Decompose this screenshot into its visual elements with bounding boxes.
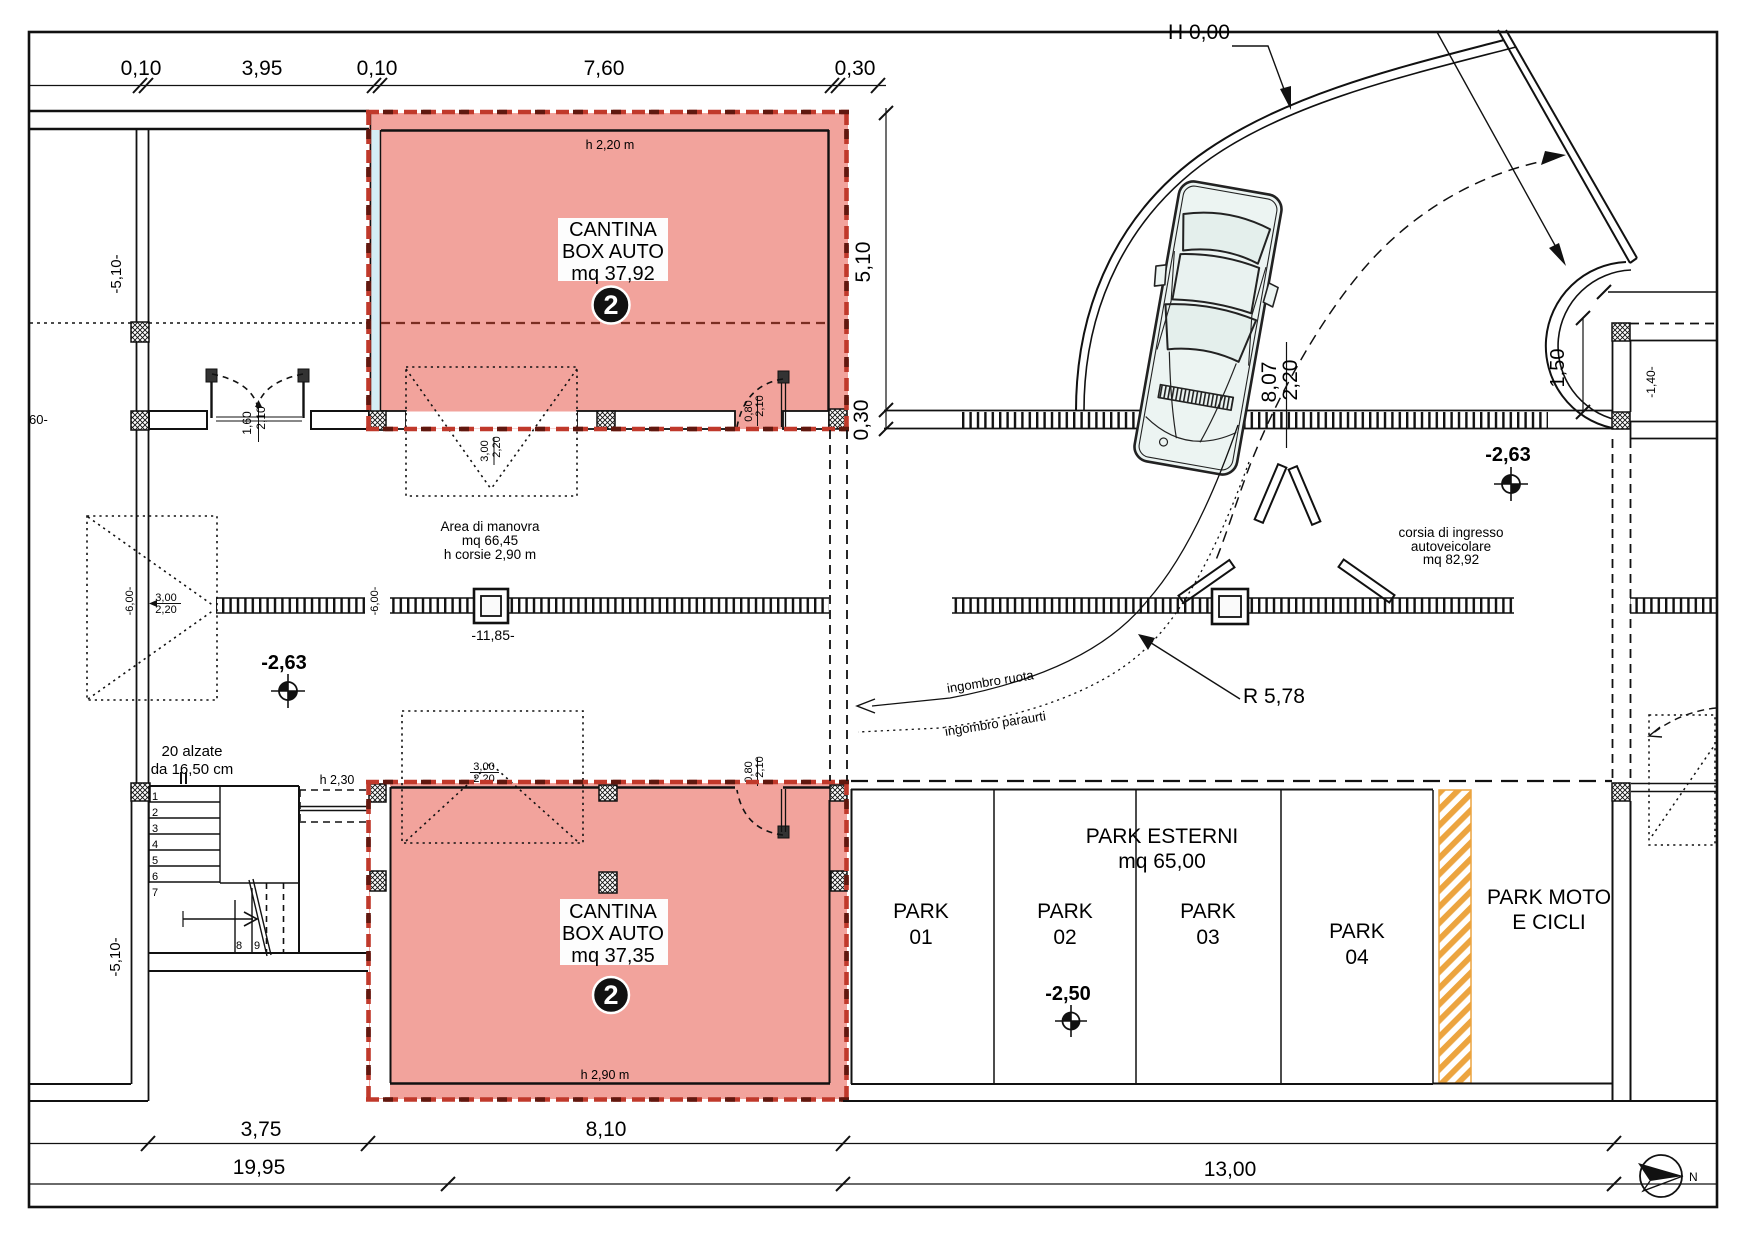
- svg-text:2,20: 2,20: [155, 604, 176, 616]
- svg-text:2,20: 2,20: [491, 436, 503, 457]
- svg-text:-2,63: -2,63: [1485, 444, 1531, 466]
- svg-text:3,75: 3,75: [241, 1118, 282, 1141]
- svg-text:20 alzate: 20 alzate: [162, 743, 223, 760]
- svg-text:E CICLI: E CICLI: [1512, 911, 1586, 934]
- svg-text:2,20: 2,20: [1279, 360, 1302, 401]
- svg-text:mq 82,92: mq 82,92: [1423, 552, 1479, 567]
- svg-text:-5,10-: -5,10-: [108, 254, 125, 293]
- svg-text:3,00: 3,00: [479, 440, 491, 461]
- svg-text:03: 03: [1196, 926, 1219, 949]
- svg-text:Area di manovra: Area di manovra: [440, 519, 540, 534]
- svg-text:0,10: 0,10: [357, 57, 398, 80]
- svg-text:2,10: 2,10: [254, 406, 268, 430]
- svg-text:1,50: 1,50: [1547, 349, 1569, 388]
- svg-text:2: 2: [603, 980, 618, 1010]
- svg-text:5,10: 5,10: [852, 242, 875, 283]
- svg-text:0,10: 0,10: [121, 57, 162, 80]
- svg-text:mq 37,35: mq 37,35: [571, 945, 654, 967]
- svg-text:9: 9: [254, 940, 260, 952]
- svg-text:-11,85-: -11,85-: [471, 627, 515, 643]
- svg-text:60-: 60-: [29, 412, 48, 427]
- svg-text:CANTINA: CANTINA: [569, 901, 657, 923]
- svg-text:13,00: 13,00: [1204, 1158, 1257, 1181]
- svg-text:corsia di ingresso: corsia di ingresso: [1398, 525, 1503, 540]
- svg-text:mq 66,45: mq 66,45: [462, 533, 518, 548]
- svg-text:2,10: 2,10: [754, 756, 766, 777]
- svg-text:04: 04: [1345, 946, 1369, 969]
- svg-text:02: 02: [1053, 926, 1076, 949]
- svg-text:8: 8: [236, 940, 242, 952]
- svg-text:-6,00-: -6,00-: [369, 586, 381, 615]
- svg-text:3,00: 3,00: [155, 592, 176, 604]
- svg-text:N: N: [1689, 1170, 1698, 1184]
- svg-text:BOX AUTO: BOX AUTO: [562, 241, 664, 263]
- svg-text:mq 37,92: mq 37,92: [571, 263, 654, 285]
- svg-text:4: 4: [152, 839, 158, 851]
- svg-text:7: 7: [152, 887, 158, 899]
- svg-text:BOX AUTO: BOX AUTO: [562, 923, 664, 945]
- svg-text:8,10: 8,10: [586, 1118, 627, 1141]
- svg-text:2: 2: [152, 807, 158, 819]
- svg-text:h 2,30: h 2,30: [320, 773, 355, 787]
- svg-text:PARK ESTERNI: PARK ESTERNI: [1086, 825, 1238, 848]
- svg-text:CANTINA: CANTINA: [569, 219, 657, 241]
- svg-text:0,30: 0,30: [835, 57, 876, 80]
- svg-text:h 2,90 m: h 2,90 m: [581, 1068, 630, 1082]
- svg-text:PARK: PARK: [893, 900, 949, 923]
- svg-text:-2,63: -2,63: [261, 652, 307, 674]
- svg-text:01: 01: [909, 926, 932, 949]
- svg-text:1,60: 1,60: [240, 411, 254, 435]
- svg-text:0,30: 0,30: [850, 400, 873, 441]
- svg-text:3: 3: [152, 823, 158, 835]
- svg-text:6: 6: [152, 871, 158, 883]
- svg-text:da 16,50 cm: da 16,50 cm: [151, 761, 234, 778]
- svg-text:2,10: 2,10: [754, 395, 766, 416]
- svg-text:2: 2: [603, 290, 618, 320]
- svg-text:8,07: 8,07: [1258, 362, 1281, 403]
- svg-text:PARK: PARK: [1180, 900, 1236, 923]
- svg-text:H 0,00: H 0,00: [1168, 21, 1230, 44]
- svg-text:PARK: PARK: [1329, 920, 1385, 943]
- svg-text:-5,10-: -5,10-: [107, 937, 124, 976]
- svg-text:PARK MOTO: PARK MOTO: [1487, 886, 1611, 909]
- svg-text:7,60: 7,60: [584, 57, 625, 80]
- svg-text:3,00: 3,00: [473, 761, 494, 773]
- svg-text:5: 5: [152, 855, 158, 867]
- svg-text:19,95: 19,95: [233, 1156, 286, 1179]
- svg-text:-6,00-: -6,00-: [124, 586, 136, 615]
- svg-text:h corsie 2,90 m: h corsie 2,90 m: [444, 547, 536, 562]
- svg-text:-2,50: -2,50: [1045, 983, 1091, 1005]
- svg-text:mq 65,00: mq 65,00: [1118, 850, 1206, 873]
- svg-text:1: 1: [152, 791, 158, 803]
- svg-text:-1,40-: -1,40-: [1644, 366, 1658, 397]
- svg-text:3,95: 3,95: [242, 57, 283, 80]
- svg-text:R 5,78: R 5,78: [1243, 685, 1305, 708]
- svg-text:PARK: PARK: [1037, 900, 1093, 923]
- svg-text:h 2,20 m: h 2,20 m: [586, 138, 635, 152]
